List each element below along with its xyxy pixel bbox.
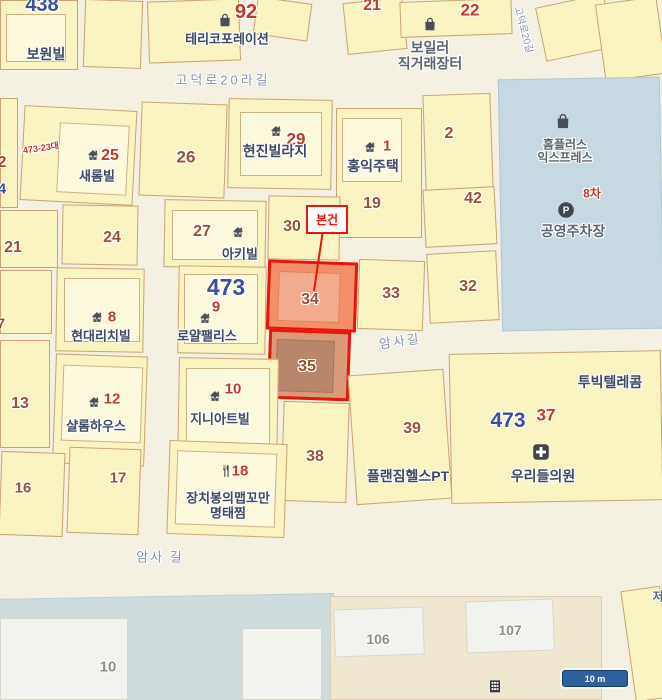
parcel-number: 22	[461, 0, 480, 19]
callout-label: 본건	[316, 211, 338, 228]
parcel-number: 34	[301, 291, 319, 309]
svg-text:P: P	[563, 206, 570, 217]
parcel-number: 38	[306, 448, 324, 466]
parcel-number: 32	[459, 278, 477, 296]
parcel-number: 16	[15, 481, 32, 498]
map-labels-layer: 438922122473-23대252629122419422124273047…	[0, 0, 662, 700]
home-icon	[88, 396, 101, 409]
place-label: 플랜짐헬스PT	[367, 469, 449, 485]
road-label: 고덕로20길	[511, 5, 534, 54]
cross-icon	[533, 444, 550, 461]
parcel-number: 42	[464, 190, 482, 208]
parcel-number: 24	[103, 229, 121, 247]
parcel-number: 7	[0, 317, 5, 334]
place-label: 테리코포레이션	[185, 33, 269, 48]
home-icon	[87, 149, 100, 162]
parcel-number: 35	[298, 358, 316, 376]
place-label: 로얄팰리스	[177, 330, 237, 345]
parcel-number: 1	[383, 139, 391, 156]
road-label: 고덕로20라길	[175, 74, 270, 89]
parking-icon: P	[558, 202, 575, 219]
parcel-number: 9	[212, 300, 220, 317]
home-icon	[364, 141, 377, 154]
parcel-number: 21	[363, 0, 381, 15]
place-label: 홈플러스익스프레스	[537, 139, 592, 166]
home-icon	[270, 125, 283, 138]
road-label: 암사길	[378, 332, 422, 352]
scale-bar: 10 m	[562, 670, 628, 687]
place-label: 현진빌라지	[243, 144, 307, 160]
parcel-number: 37	[537, 405, 556, 424]
grid-icon	[488, 679, 503, 694]
parcel-number: 92	[235, 1, 257, 23]
parcel-number: 2	[445, 125, 454, 143]
parcel-number: 107	[498, 623, 521, 639]
scale-bar-label: 10 m	[585, 674, 606, 684]
parcel-number: 10	[225, 382, 242, 399]
parcel-number: 18	[232, 464, 249, 481]
home-icon	[209, 390, 222, 403]
parcel-number: 8	[108, 310, 116, 327]
place-label: 장치봉의맵꼬만명태찜	[186, 491, 270, 520]
place-label: 아키빌	[222, 248, 258, 263]
parcel-number: 473	[490, 409, 525, 433]
parcel-number: 106	[366, 632, 389, 648]
parcel-number: 21	[4, 239, 22, 257]
subject-property-callout: 본건	[306, 205, 348, 234]
parcel-number: 4	[0, 182, 6, 199]
home-icon	[199, 312, 212, 325]
parcel-number: 473	[207, 275, 245, 301]
parcel-number: 17	[110, 471, 127, 488]
place-label: 지니아트빌	[190, 413, 250, 428]
parcel-number: 438	[25, 0, 58, 16]
place-label: 현대리치빌	[71, 330, 131, 345]
home-icon	[232, 226, 245, 239]
place-label: 샬롬하우스	[66, 420, 126, 435]
parcel-number: 33	[382, 285, 400, 303]
home-icon	[91, 311, 104, 324]
parcel-number: 39	[403, 420, 421, 438]
place-label: 저	[652, 590, 662, 603]
parcel-number: 473-23대	[22, 140, 59, 155]
place-label: 보일러직거래장터	[398, 40, 462, 71]
parcel-number: 27	[193, 223, 211, 241]
place-label: 투빅텔레콤	[578, 375, 642, 391]
place-label: 새롬빌	[79, 170, 115, 185]
parcel-number: 19	[363, 195, 381, 213]
parcel-number: 2	[0, 154, 6, 172]
place-label: 공영주차장	[541, 224, 605, 240]
place-label: 우리들의원	[511, 469, 575, 485]
parcel-number: 12	[104, 392, 121, 409]
parcel-number: 26	[177, 147, 196, 166]
road-label: 암사 길	[136, 551, 184, 566]
bag-icon	[555, 113, 572, 130]
bag-icon	[218, 13, 233, 28]
place-label: 홍익주택	[347, 159, 399, 175]
parcel-number: 13	[11, 395, 29, 413]
map-canvas[interactable]: 438922122473-23대252629122419422124273047…	[0, 0, 662, 700]
place-label: 8차	[583, 187, 601, 200]
bag-icon	[423, 17, 438, 32]
parcel-number: 30	[283, 218, 301, 236]
fork-icon	[219, 464, 233, 478]
parcel-number: 25	[101, 147, 119, 165]
place-label: 보원빌	[27, 47, 66, 63]
parcel-number: 10	[100, 660, 117, 677]
